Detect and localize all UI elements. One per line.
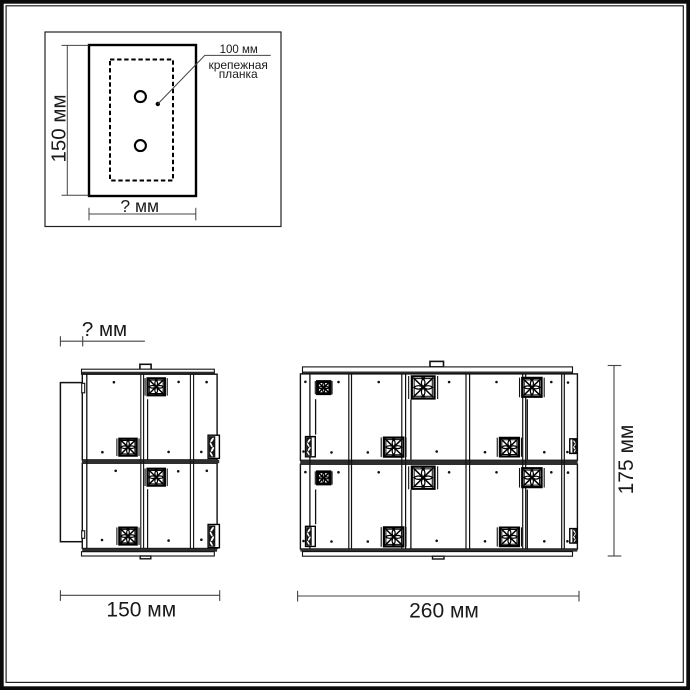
svg-text:260 мм: 260 мм [409,600,479,623]
svg-text:175 мм: 175 мм [615,425,638,495]
svg-text:150 мм: 150 мм [48,94,71,162]
svg-text:? мм: ? мм [82,318,127,341]
svg-text:150 мм: 150 мм [106,599,176,622]
svg-text:планка: планка [219,67,258,81]
svg-text:? мм: ? мм [120,196,159,216]
svg-text:100 мм: 100 мм [220,44,258,56]
